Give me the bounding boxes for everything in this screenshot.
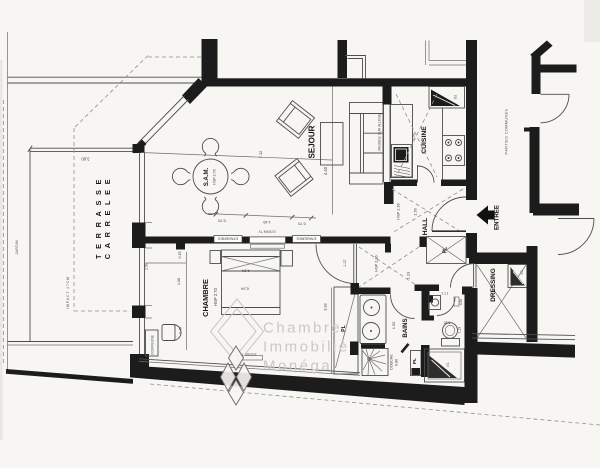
svg-text:1.19: 1.19: [458, 327, 462, 334]
svg-text:1.68: 1.68: [177, 278, 181, 285]
svg-text:S.A.M.: S.A.M.: [204, 168, 210, 187]
svg-text:CHAMBRE: CHAMBRE: [201, 279, 210, 317]
svg-text:HSP 2.70: HSP 2.70: [213, 287, 218, 306]
svg-text:ENTREE: ENTREE: [494, 205, 501, 230]
svg-text:ECRAN TV: ECRAN TV: [258, 230, 276, 234]
svg-text:ETAGERES: ETAGERES: [218, 236, 238, 240]
svg-text:CUISINE: CUISINE: [421, 126, 428, 154]
svg-text:PL: PL: [412, 358, 417, 364]
svg-text:JARDIN: JARDIN: [14, 240, 19, 254]
svg-text:4.24: 4.24: [242, 269, 249, 273]
svg-text:1.27: 1.27: [343, 259, 347, 266]
svg-text:G2: G2: [454, 95, 458, 100]
svg-text:G3: G3: [520, 270, 524, 274]
svg-text:ETAGERES: ETAGERES: [296, 236, 316, 240]
svg-text:Monéga: Monéga: [263, 358, 332, 375]
svg-text:0.50: 0.50: [459, 299, 463, 305]
svg-text:Chambre: Chambre: [263, 320, 342, 337]
svg-text:3.82: 3.82: [323, 303, 328, 311]
svg-text:COIFFEUSE: COIFFEUSE: [151, 334, 155, 355]
svg-text:1.40: 1.40: [263, 220, 270, 224]
svg-text:3.00: 3.00: [81, 157, 90, 162]
svg-text:SEJOUR: SEJOUR: [308, 125, 317, 158]
svg-text:HSP 2.36: HSP 2.36: [397, 203, 401, 219]
svg-text:0.70: 0.70: [218, 219, 225, 223]
svg-text:6.24: 6.24: [241, 287, 248, 291]
svg-text:0.80: 0.80: [395, 359, 399, 366]
svg-text:TERRASSE: TERRASSE: [94, 174, 103, 259]
svg-text:HALL: HALL: [422, 218, 429, 236]
svg-text:PL: PL: [443, 247, 449, 253]
svg-text:BAINS: BAINS: [402, 318, 409, 337]
svg-text:HSP 2.36: HSP 2.36: [375, 255, 379, 271]
svg-text:HSP 2.70: HSP 2.70: [213, 169, 217, 184]
svg-text:Immobiliè: Immobiliè: [263, 339, 350, 356]
svg-text:1.50: 1.50: [413, 207, 418, 215]
svg-text:DRESSING: DRESSING: [490, 268, 497, 301]
svg-text:0.15: 0.15: [178, 252, 182, 259]
svg-text:1.23: 1.23: [407, 272, 411, 279]
svg-text:IMPACT 47CM: IMPACT 47CM: [66, 276, 70, 309]
svg-text:1.53: 1.53: [392, 322, 396, 329]
svg-text:DOUCHE: DOUCHE: [390, 354, 394, 370]
svg-text:0.30: 0.30: [444, 321, 451, 325]
svg-text:7.12: 7.12: [258, 150, 263, 159]
svg-text:CARRELEE: CARRELEE: [103, 174, 112, 259]
svg-text:MEUBLE SUR ALLEGE: MEUBLE SUR ALLEGE: [378, 113, 382, 151]
svg-text:1.50: 1.50: [145, 263, 149, 270]
svg-text:G1: G1: [446, 362, 450, 367]
svg-text:4.40: 4.40: [323, 166, 328, 175]
svg-text:PARTIES COMMUNES: PARTIES COMMUNES: [505, 108, 509, 154]
svg-text:0.70: 0.70: [298, 222, 305, 226]
svg-text:1.1 1: 1.1 1: [441, 292, 448, 296]
svg-text:1.45: 1.45: [179, 327, 183, 334]
